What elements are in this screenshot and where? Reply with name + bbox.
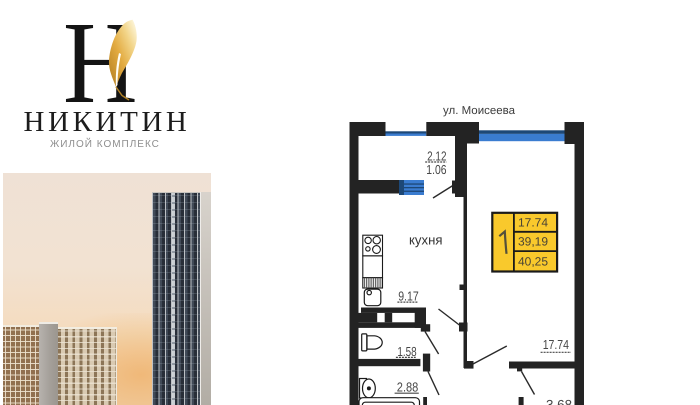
svg-text:9.17: 9.17 — [398, 289, 419, 304]
svg-text:2.12: 2.12 — [427, 148, 446, 163]
svg-text:ул. Моисеева: ул. Моисеева — [443, 105, 516, 117]
svg-text:40,25: 40,25 — [518, 255, 548, 269]
svg-text:2.88: 2.88 — [397, 380, 419, 395]
svg-text:1.06: 1.06 — [426, 162, 446, 177]
svg-text:17.74: 17.74 — [543, 337, 569, 352]
svg-text:17.74: 17.74 — [518, 215, 548, 229]
svg-text:39,19: 39,19 — [518, 235, 548, 249]
svg-text:3,68: 3,68 — [546, 397, 572, 405]
svg-text:кухня: кухня — [409, 233, 443, 248]
